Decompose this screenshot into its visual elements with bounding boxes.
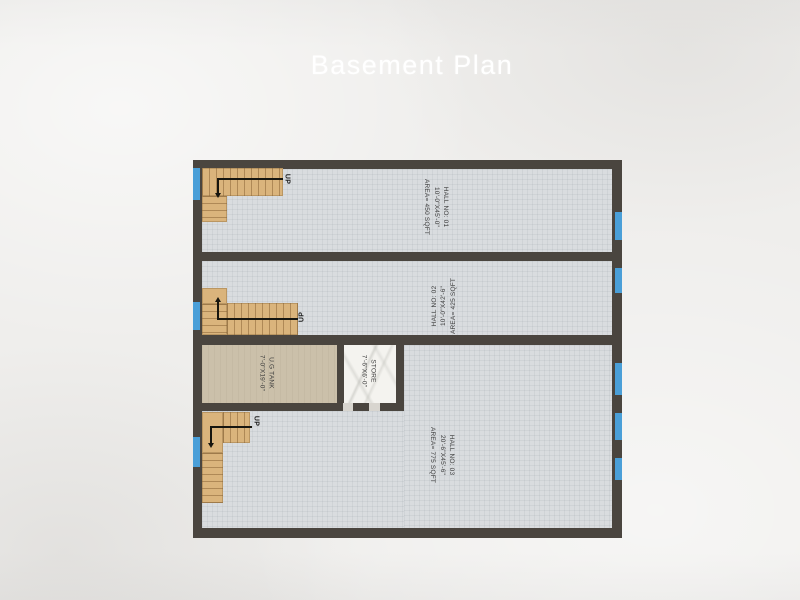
- hall3-dims: 20'-6"X45'-6": [437, 427, 446, 483]
- up-arrow-line: [210, 426, 212, 444]
- window-marker: [193, 168, 200, 200]
- hall3-area: AREA= 775 SQFT: [428, 427, 437, 483]
- up-label: UP: [253, 416, 260, 426]
- stair-hall3-lower-flight: [202, 453, 223, 503]
- up-arrow-head: [215, 297, 221, 302]
- window-marker: [615, 212, 622, 240]
- store-label: STORE 7'-6"X6'-0": [359, 355, 378, 387]
- up-arrow-line: [210, 426, 252, 428]
- hall3-name: HALL NO: 03: [447, 427, 456, 483]
- up-arrow-head: [208, 443, 214, 448]
- window-marker: [615, 458, 622, 480]
- basement-floor-plan: UP UP UP HALL NO: 01 10'-0"X45'-0" AREA=…: [193, 160, 622, 538]
- up-label: UP: [299, 312, 306, 322]
- hall2-dims: 10'-0"X42'-6": [439, 278, 448, 334]
- window-marker: [615, 413, 622, 440]
- up-arrow-line: [217, 178, 219, 194]
- hall1-dims: 10'-0"X45'-0": [431, 179, 440, 235]
- up-arrow-line: [217, 178, 283, 180]
- hall1-area: AREA= 450 SQFT: [422, 179, 431, 235]
- up-label: UP: [284, 174, 291, 184]
- wall-tank-store-divider: [337, 345, 344, 411]
- hall2-area: AREA= 425 SQFT: [449, 278, 458, 334]
- ug-tank-label: U.G TANK 7'-0"X19'-0": [257, 355, 276, 391]
- store-door-opening: [369, 403, 380, 411]
- window-marker: [193, 302, 200, 330]
- wall-hall2-middle: [193, 335, 622, 345]
- store-door-opening: [343, 403, 353, 411]
- up-arrow-line: [217, 318, 298, 320]
- outer-wall-left: [193, 160, 202, 538]
- hall2-name: HALL NO: 02: [430, 278, 439, 334]
- page-title: Basement Plan: [311, 50, 514, 81]
- ug-tank-dims: 7'-0"X19'-0": [257, 355, 266, 391]
- stair-hall1-lower-flight: [202, 196, 227, 222]
- store-name: STORE: [368, 355, 377, 387]
- hall1-name: HALL NO: 01: [441, 179, 450, 235]
- window-marker: [615, 268, 622, 293]
- hall2-label: HALL NO: 02 10'-0"X42'-6" AREA= 425 SQFT: [430, 278, 458, 334]
- window-marker: [615, 363, 622, 395]
- up-arrow-head: [215, 193, 221, 198]
- store-dims: 7'-6"X6'-0": [359, 355, 368, 387]
- stair-hall1-upper-flight: [202, 168, 283, 196]
- hall3-label: HALL NO: 03 20'-6"X45'-6" AREA= 775 SQFT: [428, 427, 456, 483]
- ug-tank-name: U.G TANK: [266, 355, 275, 391]
- outer-wall-bottom: [193, 528, 622, 538]
- window-marker: [193, 437, 200, 467]
- wall-hall1-hall2: [193, 252, 622, 261]
- wall-store-right: [396, 345, 404, 411]
- hall1-label: HALL NO: 01 10'-0"X45'-0" AREA= 450 SQFT: [422, 179, 450, 235]
